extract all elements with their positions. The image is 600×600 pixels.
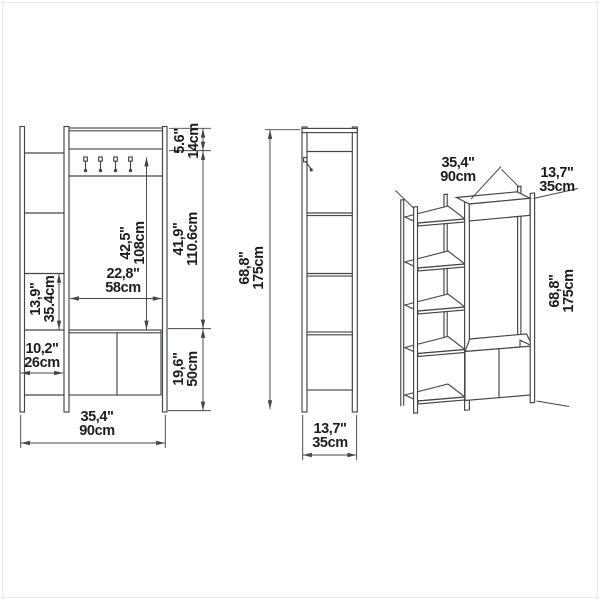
dim-front-open-zone-height: 41,9" 110.6cm [172, 212, 200, 266]
dim-front-shelf-column-width: 10,2" 26cm [24, 342, 60, 370]
dim-persp-total-depth: 13,7" 35cm [539, 166, 575, 194]
hook-icon [99, 157, 103, 172]
side-view-linework [302, 127, 357, 412]
dim-front-shelf-gap: 13,9" 35.4cm [29, 276, 57, 323]
front-cabinet [69, 330, 161, 395]
front-mid-post [64, 127, 69, 413]
side-view-dimensions [265, 130, 357, 460]
side-cabinet [307, 332, 352, 390]
hook-icon [129, 157, 133, 172]
drawing-canvas [0, 0, 600, 600]
persp-cabinet [465, 334, 532, 401]
dim-side-total-height: 68,8" 175cm [238, 246, 266, 289]
dim-persp-total-height: 68,8" 175cm [548, 269, 576, 312]
dim-front-inner-width: 22,8" 58cm [105, 267, 141, 295]
front-right-post [163, 127, 168, 413]
dim-persp-total-width: 35,4" 90cm [440, 156, 476, 184]
persp-front-left-post [414, 207, 418, 413]
side-top-panel [302, 128, 357, 132]
dim-front-top-panel-height: 5.6" 14cm [173, 123, 201, 159]
side-back-post [352, 127, 357, 412]
persp-front-right-post [530, 193, 534, 403]
dim-front-total-width: 35,4" 90cm [79, 410, 115, 438]
coat-hooks [84, 157, 133, 172]
hook-icon [84, 157, 88, 172]
hook-icon [114, 157, 118, 172]
side-shelf-lines [307, 213, 352, 276]
dim-front-cabinet-zone-height: 19,6" 50cm [172, 351, 200, 387]
dim-side-total-depth: 13,7" 35cm [312, 422, 348, 450]
front-top-panel [69, 128, 163, 149]
dim-front-hook-to-cabinet: 42,5" 108cm [119, 221, 147, 264]
technical-drawing-page: 5.6" 14cm 41,9" 110.6cm 19,6" 50cm 42,5"… [0, 0, 600, 600]
side-front-post [302, 127, 307, 412]
